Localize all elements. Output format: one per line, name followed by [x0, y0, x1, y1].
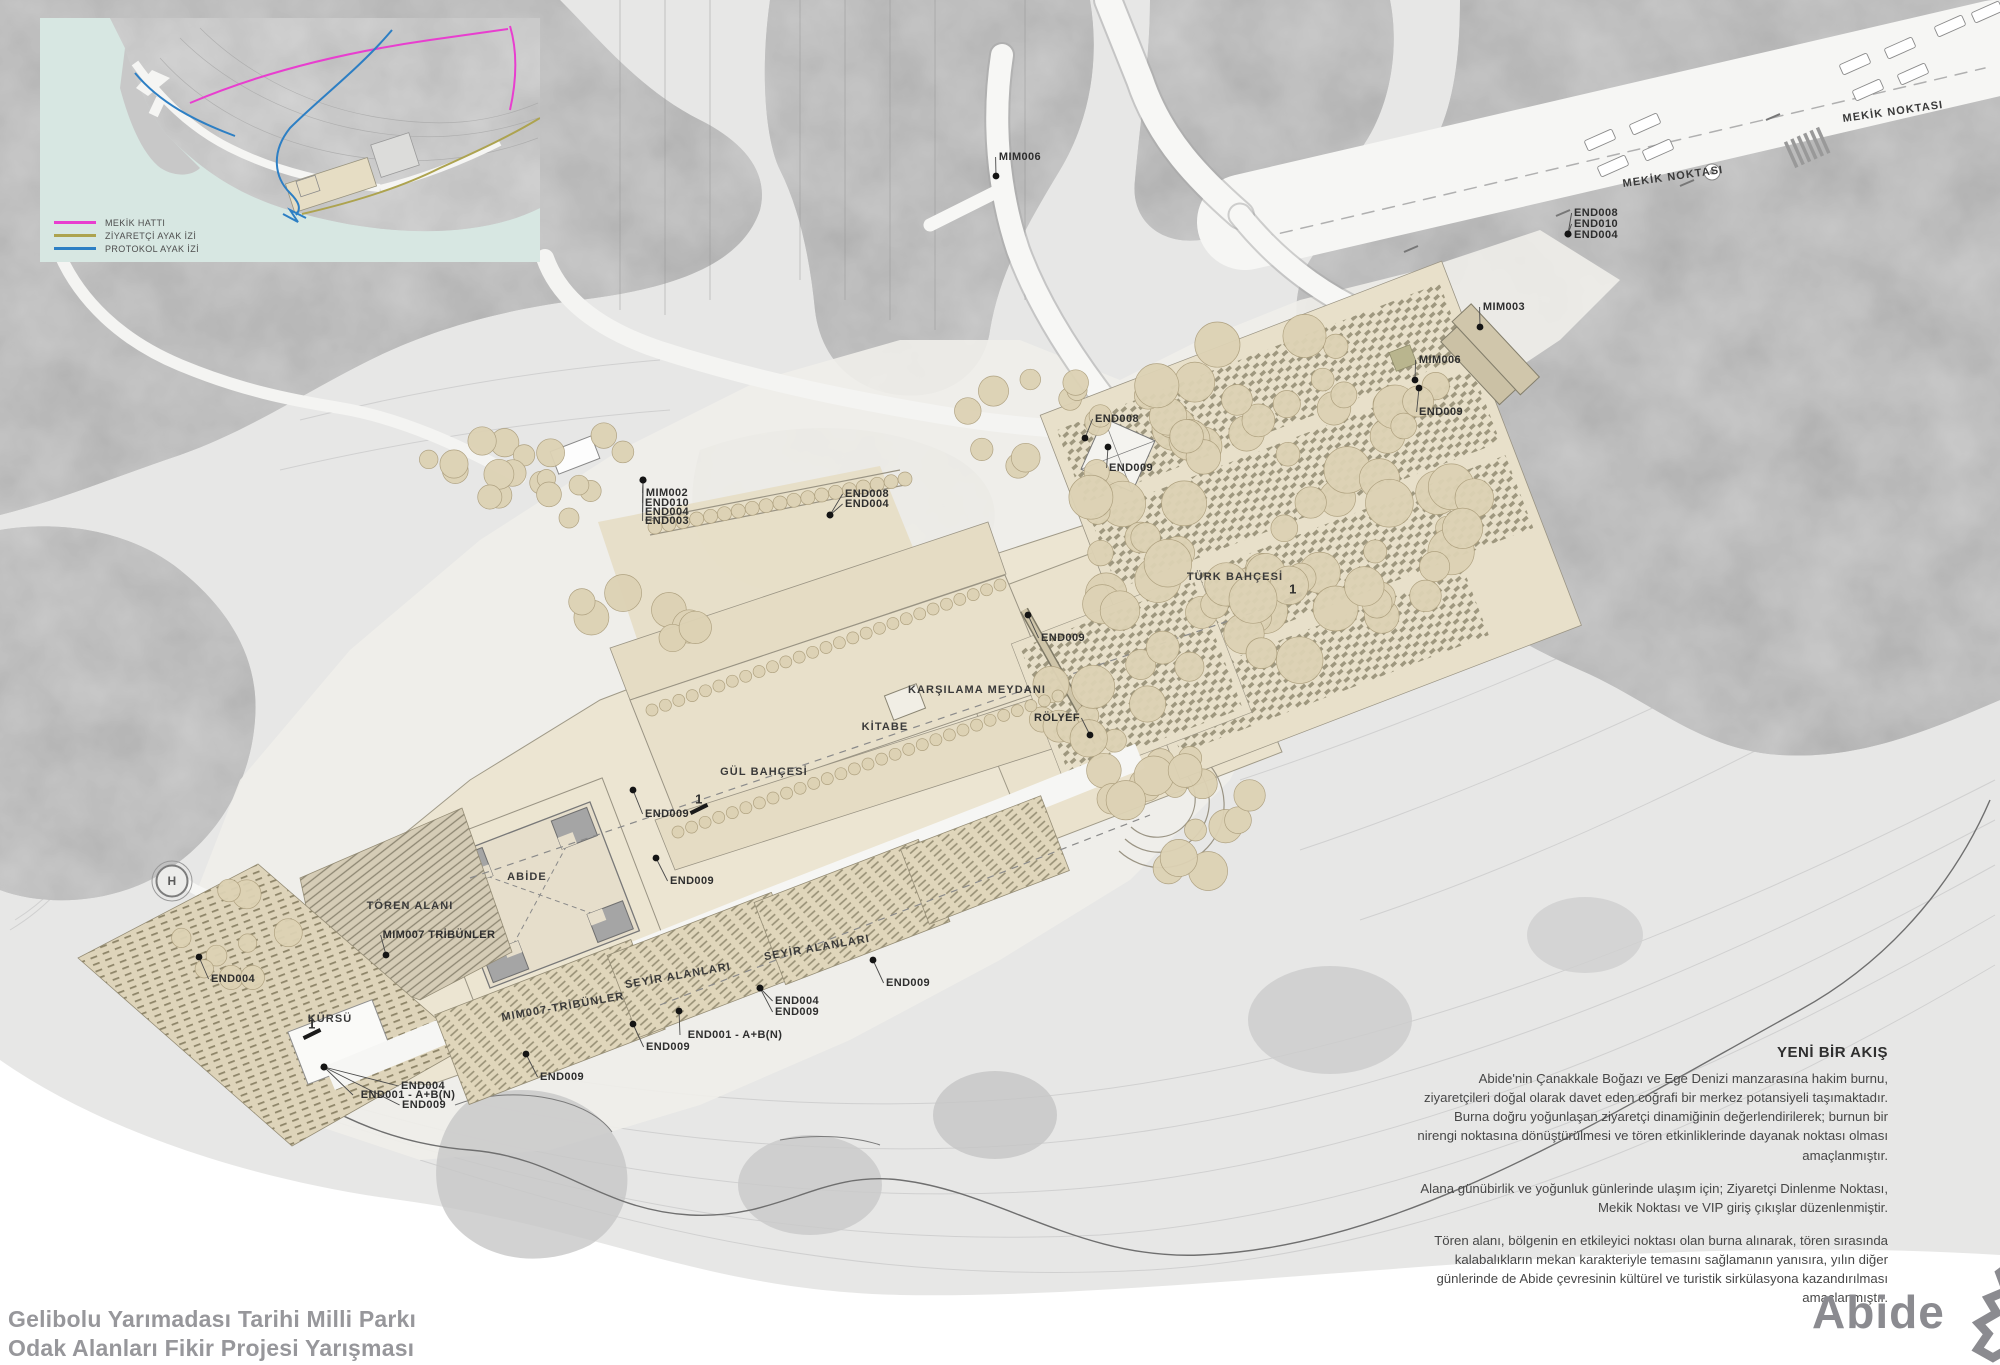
legend-label: MEKİK HATTI [105, 218, 165, 228]
legend-row-mekik: MEKİK HATTI [54, 216, 199, 229]
abide-logo: Abide [1812, 1258, 2000, 1365]
inset-key-map: MEKİK HATTI ZİYARETÇİ AYAK İZİ PROTOKOL … [40, 18, 540, 262]
legend-row-ziyaretci: ZİYARETÇİ AYAK İZİ [54, 229, 199, 242]
inset-legend: MEKİK HATTI ZİYARETÇİ AYAK İZİ PROTOKOL … [54, 216, 199, 255]
competition-title-line1: Gelibolu Yarımadası Tarihi Milli Parkı [8, 1305, 416, 1334]
competition-title-line2: Odak Alanları Fikir Projesi Yarışması [8, 1334, 416, 1363]
legend-label: PROTOKOL AYAK İZİ [105, 244, 199, 254]
mekik-line-swatch [54, 221, 96, 224]
legend-label: ZİYARETÇİ AYAK İZİ [105, 231, 196, 241]
peninsula-logo-icon [1951, 1258, 2000, 1365]
helipad [152, 861, 192, 901]
competition-title: Gelibolu Yarımadası Tarihi Milli Parkı O… [8, 1305, 416, 1364]
ziyaretci-line-swatch [54, 234, 96, 237]
abide-logo-text: Abide [1812, 1285, 1945, 1339]
description-paragraph: Abide'nin Çanakkale Boğazı ve Ege Denizi… [1412, 1069, 1888, 1165]
legend-row-protokol: PROTOKOL AYAK İZİ [54, 242, 199, 255]
protokol-line-swatch [54, 247, 96, 250]
description-title: YENİ BİR AKIŞ [1412, 1044, 1888, 1061]
description-paragraph: Alana günübirlik ve yoğunluk günlerinde … [1412, 1179, 1888, 1217]
presentation-board: MEKİK HATTI ZİYARETÇİ AYAK İZİ PROTOKOL … [0, 0, 2000, 1365]
